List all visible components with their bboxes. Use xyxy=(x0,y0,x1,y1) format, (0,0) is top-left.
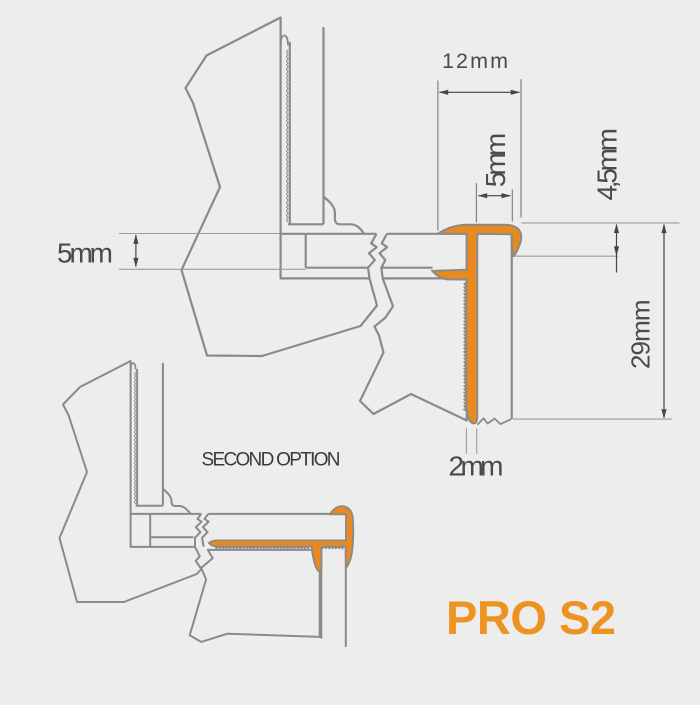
svg-text:12mm: 12mm xyxy=(442,49,508,73)
svg-text:SECOND OPTION: SECOND OPTION xyxy=(202,449,341,470)
svg-text:2mm: 2mm xyxy=(449,451,504,482)
svg-text:5mm: 5mm xyxy=(57,237,113,268)
svg-text:PRO S2: PRO S2 xyxy=(446,591,616,644)
svg-text:4,5mm: 4,5mm xyxy=(592,128,623,201)
svg-text:5mm: 5mm xyxy=(480,133,511,188)
svg-text:29mm: 29mm xyxy=(626,300,656,370)
